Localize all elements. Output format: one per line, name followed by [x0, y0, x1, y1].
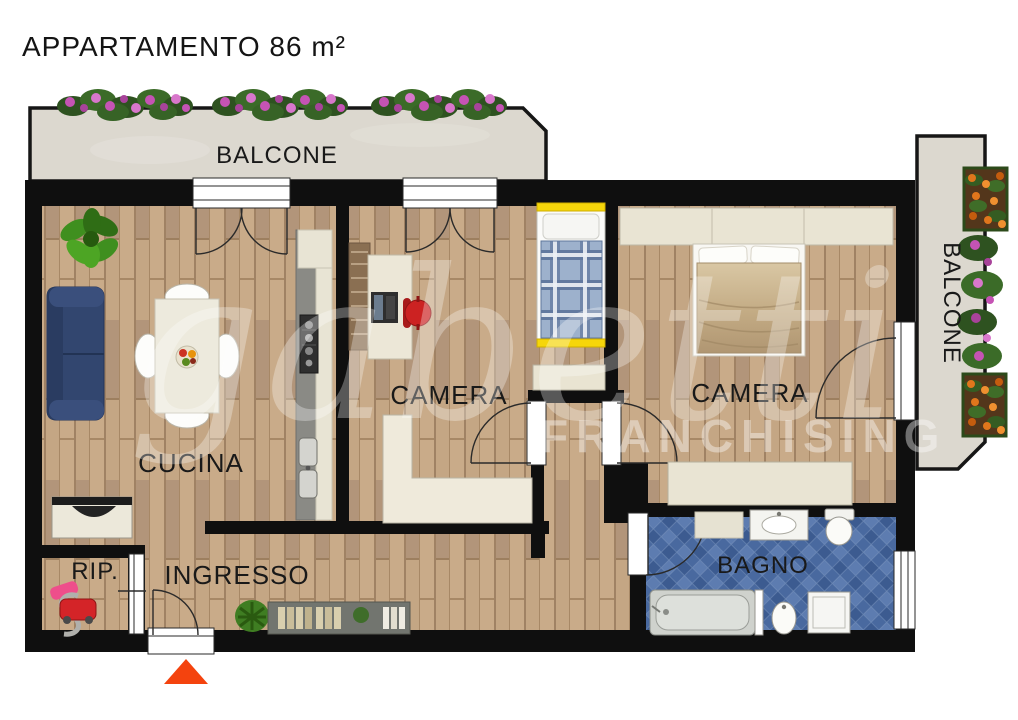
flower-box — [964, 168, 1007, 230]
shower-tray — [808, 592, 850, 633]
toilet — [825, 509, 854, 545]
balcony-top-label: BALCONE — [216, 142, 338, 169]
bath-mat — [695, 512, 743, 538]
dishwasher — [52, 497, 132, 538]
bookshelf — [268, 602, 410, 634]
window — [894, 551, 915, 629]
floor-plan-page: APPARTAMENTO 86 m² BALCONE BALCONE — [0, 0, 1018, 720]
cabinet — [668, 462, 852, 505]
shelf-plant — [353, 607, 369, 623]
balcony-right-label: BALCONE — [938, 242, 965, 364]
bathtub — [650, 590, 755, 635]
flower-box — [963, 374, 1006, 436]
bathroom-sink — [750, 510, 808, 540]
room-label-rip: RIP. — [71, 558, 119, 585]
room-label-ingresso: INGRESSO — [164, 560, 309, 590]
shower-screen — [755, 590, 763, 635]
balcony-top: BALCONE — [30, 89, 546, 181]
room-label-bagno: BAGNO — [717, 552, 809, 579]
watermark: gabetti FRANCHISING — [128, 226, 947, 468]
page-title: APPARTAMENTO 86 m² — [22, 31, 346, 62]
floor-plan-image: APPARTAMENTO 86 m² BALCONE BALCONE — [0, 0, 1018, 720]
potted-plant — [235, 600, 269, 632]
bidet — [772, 602, 796, 634]
watermark-sub: FRANCHISING — [540, 410, 947, 462]
sofa — [47, 287, 104, 420]
